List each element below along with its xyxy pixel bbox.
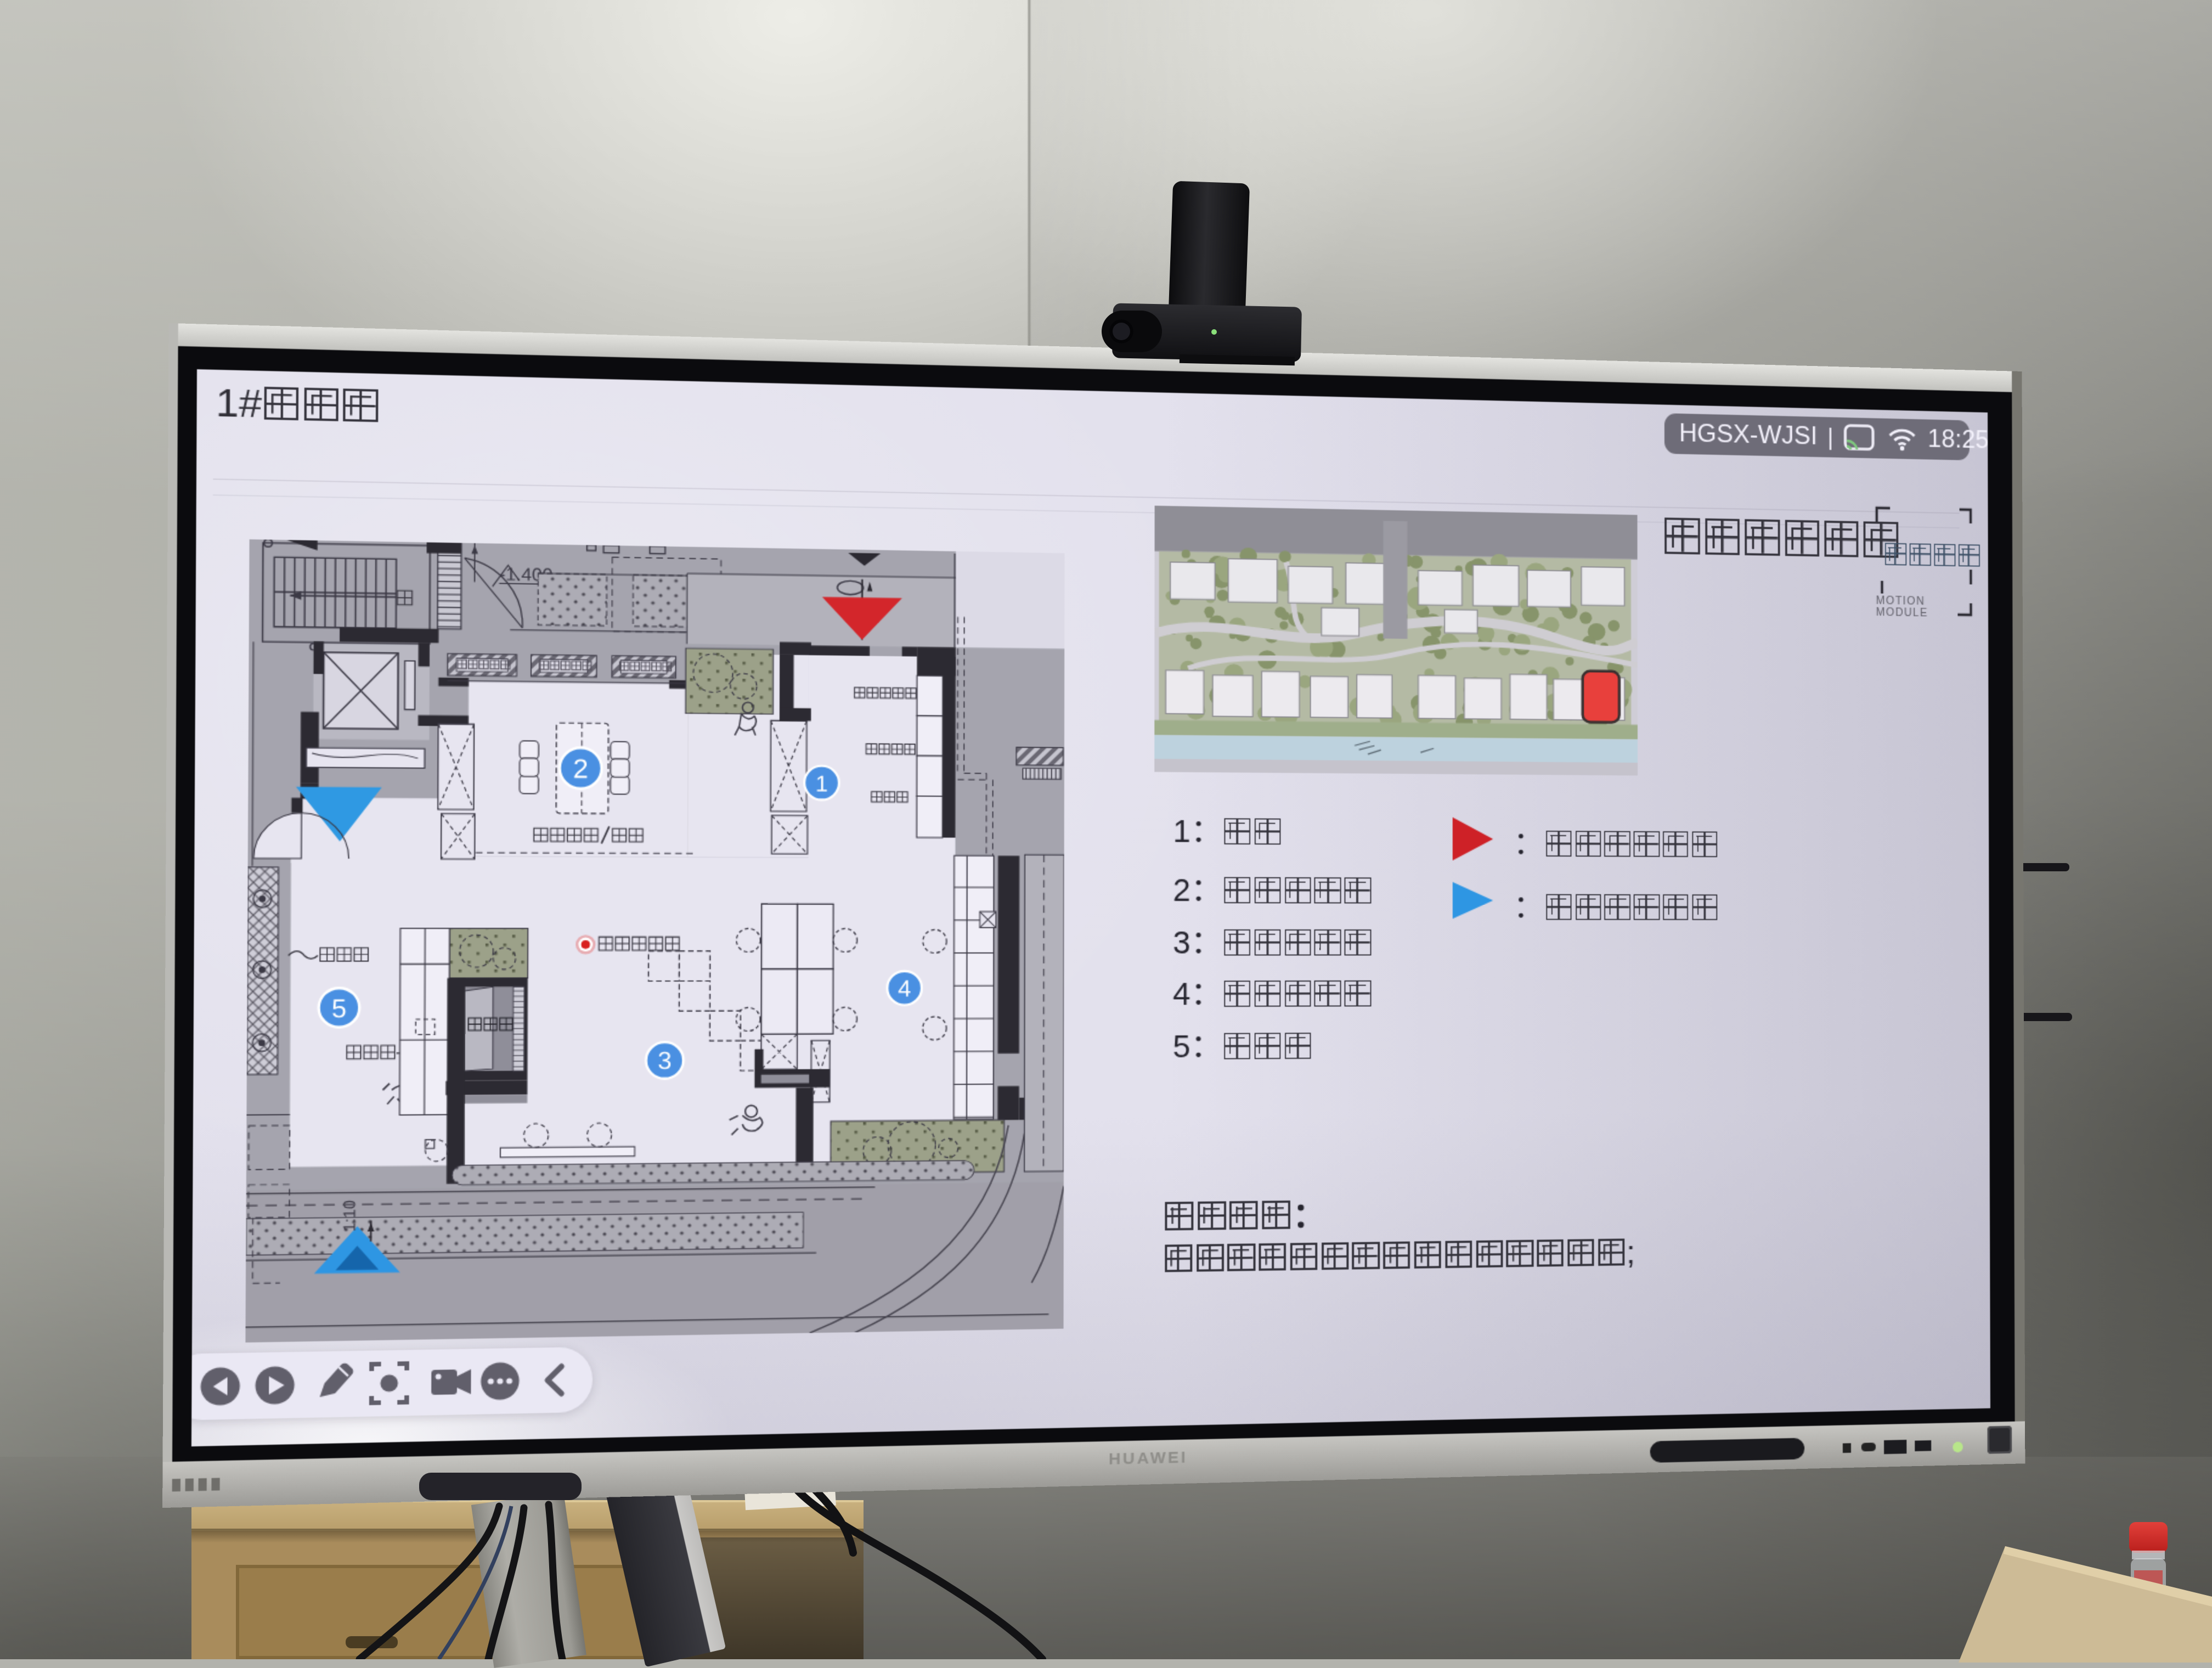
svg-text:4: 4 [898, 975, 911, 1001]
svg-text:1:10: 1:10 [340, 1200, 359, 1232]
svg-text:5: 5 [331, 995, 347, 1024]
svg-text:3: 3 [658, 1047, 672, 1074]
svg-text:2: 2 [573, 754, 588, 784]
svg-text:1: 1 [815, 771, 828, 797]
